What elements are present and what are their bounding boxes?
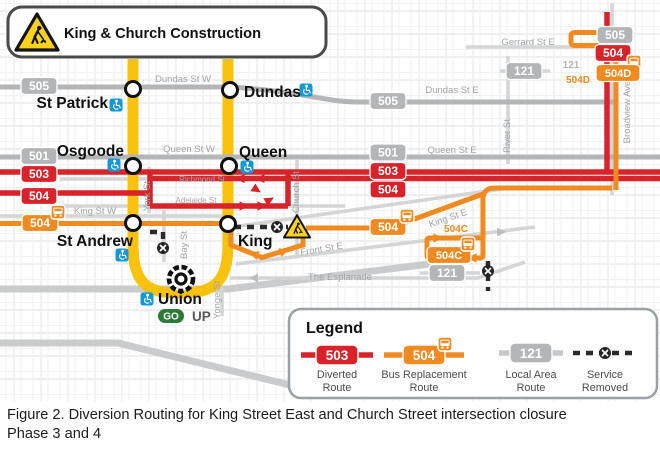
route-label-504C: 504C bbox=[444, 224, 468, 235]
legend-badge-503: 503 bbox=[326, 348, 349, 363]
accessibility-icon bbox=[241, 161, 254, 174]
svg-text:503: 503 bbox=[29, 167, 49, 181]
badge-121-north: 121 bbox=[506, 63, 542, 80]
bus-icon bbox=[400, 209, 414, 223]
accessibility-icon bbox=[300, 84, 313, 97]
station-label-st-patrick: St Patrick bbox=[36, 95, 108, 112]
station-queen bbox=[222, 159, 237, 174]
street-label-richmond: Richmond St bbox=[179, 175, 226, 184]
badge-505-east: 505 bbox=[370, 93, 406, 110]
legend-label: Diverted bbox=[317, 369, 357, 381]
accessibility-icon bbox=[108, 159, 121, 172]
legend-label: Route bbox=[410, 382, 439, 394]
street-label-bay: Bay St bbox=[179, 231, 190, 259]
svg-text:121: 121 bbox=[514, 64, 534, 78]
legend-title: Legend bbox=[306, 320, 363, 337]
street-label-dundas-e: Dundas St E bbox=[425, 85, 478, 96]
removed-icon bbox=[599, 347, 611, 359]
badge-501-east: 501 bbox=[370, 144, 406, 161]
accessibility-icon bbox=[110, 99, 123, 112]
svg-text:505: 505 bbox=[605, 28, 625, 42]
bus-icon bbox=[438, 337, 452, 351]
caption-line-1: Figure 2. Diversion Routing for King Str… bbox=[7, 407, 567, 423]
station-union-marker bbox=[169, 267, 193, 291]
badge-504D: 504D bbox=[596, 65, 640, 82]
legend-label: Local Area bbox=[505, 369, 556, 381]
legend-label: Service bbox=[587, 369, 623, 381]
street-label-adelaide: Adelaide St bbox=[176, 196, 218, 205]
removed-icon bbox=[157, 242, 169, 254]
up-express-text: UP bbox=[192, 309, 211, 324]
route-label-121: 121 bbox=[563, 60, 580, 71]
street-label-dundas-w: Dundas St W bbox=[155, 74, 211, 85]
svg-text:505: 505 bbox=[29, 79, 49, 93]
svg-text:121: 121 bbox=[437, 266, 457, 280]
station-label-king: King bbox=[238, 233, 272, 250]
street-label-gerrard-e: Gerrard St E bbox=[501, 37, 554, 48]
badge-501-west: 501 bbox=[21, 148, 57, 165]
legend-label: Bus Replacement bbox=[381, 369, 466, 381]
svg-text:504D: 504D bbox=[605, 68, 631, 80]
svg-text:504: 504 bbox=[29, 189, 49, 203]
badge-121-east: 121 bbox=[429, 265, 465, 282]
accessibility-icon bbox=[141, 293, 154, 306]
svg-text:504C: 504C bbox=[436, 250, 462, 262]
station-label-st-andrew: St Andrew bbox=[57, 233, 134, 250]
removed-icon bbox=[271, 221, 283, 233]
badge-505-northeast: 505 bbox=[597, 27, 633, 44]
figure: Dundas St W Dundas St E Queen St W Queen… bbox=[0, 0, 660, 453]
bus-icon bbox=[461, 237, 475, 251]
street-label-yonge: Yonge St bbox=[212, 281, 223, 320]
street-label-broadview: Broadview Ave bbox=[622, 81, 633, 144]
legend-badge-504: 504 bbox=[413, 348, 436, 363]
go-logo-text: GO bbox=[163, 312, 179, 323]
construction-banner: King & Church Construction bbox=[8, 7, 326, 57]
svg-text:504: 504 bbox=[30, 216, 50, 230]
badge-504-west: 504 bbox=[21, 188, 57, 205]
street-label-river: River St bbox=[502, 119, 513, 153]
badge-504-east: 504 bbox=[370, 181, 406, 198]
badge-504-northeast: 504 bbox=[595, 45, 631, 62]
legend-label: Route bbox=[323, 382, 352, 394]
station-st-patrick bbox=[126, 82, 141, 97]
street-label-king-w: King St W bbox=[74, 206, 116, 217]
badge-503-west: 503 bbox=[21, 166, 57, 183]
station-st-andrew bbox=[126, 216, 141, 231]
street-label-york: York St bbox=[142, 181, 153, 212]
street-label-queen-e: Queen St E bbox=[427, 145, 476, 156]
banner-title: King & Church Construction bbox=[64, 26, 261, 42]
badge-503-east: 503 bbox=[370, 163, 406, 180]
bus-icon bbox=[51, 205, 65, 219]
svg-text:503: 503 bbox=[378, 164, 398, 178]
station-dundas bbox=[223, 83, 238, 98]
legend-label: Route bbox=[517, 382, 546, 394]
station-label-queen: Queen bbox=[239, 144, 287, 161]
legend-badge-121: 121 bbox=[520, 346, 543, 361]
svg-text:504: 504 bbox=[378, 220, 398, 234]
caption-line-2: Phase 3 and 4 bbox=[7, 426, 101, 442]
street-label-queen-w: Queen St W bbox=[163, 144, 215, 155]
station-label-osgoode: Osgoode bbox=[57, 143, 125, 160]
removed-icon bbox=[482, 265, 494, 277]
accessibility-icon bbox=[116, 249, 129, 262]
svg-text:501: 501 bbox=[29, 149, 49, 163]
station-label-union: Union bbox=[158, 291, 202, 308]
svg-text:504: 504 bbox=[603, 46, 623, 60]
street-label-esplanade: The Esplanade bbox=[308, 272, 372, 283]
svg-text:505: 505 bbox=[378, 94, 398, 108]
station-king bbox=[221, 217, 236, 232]
station-osgoode bbox=[126, 159, 141, 174]
station-label-dundas: Dundas bbox=[244, 84, 301, 101]
svg-text:501: 501 bbox=[378, 146, 398, 160]
route-label-504D: 504D bbox=[566, 75, 590, 86]
legend-label: Removed bbox=[582, 382, 628, 394]
legend: Legend 503 Diverted Route 504 Bus Replac… bbox=[289, 309, 657, 398]
svg-text:504: 504 bbox=[378, 183, 398, 197]
diversion-map: Dundas St W Dundas St E Queen St W Queen… bbox=[0, 0, 660, 453]
badge-505-west: 505 bbox=[21, 78, 57, 95]
street-label-church: Church St bbox=[291, 171, 302, 214]
